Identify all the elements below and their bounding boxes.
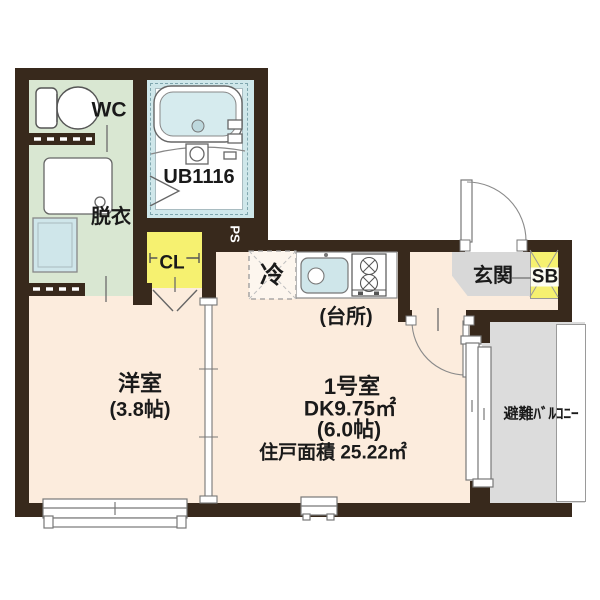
main-room-dk-size: (6.0帖)	[317, 420, 381, 441]
kitchen-label: (台所)	[319, 307, 372, 327]
dressing-label: 脱衣	[91, 207, 131, 227]
unit-bath-inner-white	[155, 88, 243, 210]
wall-wc-ub-divider	[133, 68, 147, 290]
wall-mid-a	[230, 240, 465, 252]
pipe-space-label: PS	[229, 225, 242, 242]
wall-entrance-bottom-left	[398, 310, 412, 322]
front-door-icon	[460, 180, 527, 251]
wc-label: WC	[92, 100, 127, 121]
wall-bottom	[15, 503, 572, 517]
wall-left	[15, 68, 29, 517]
main-room-dk-area: DK9.75㎡	[304, 399, 396, 420]
wall-dressing-bottom	[29, 283, 85, 296]
western-room-label: 洋室	[118, 373, 162, 395]
balcony-label: 避難ﾊﾞﾙｺﾆｰ	[503, 407, 578, 422]
floor-plan: WC 脱衣 UB1116 CL PS 冷 (台所) 玄関 SB 洋室 (3.8帖…	[0, 0, 600, 600]
entrance-label: 玄関	[473, 266, 513, 286]
wall-closet-left-block	[133, 283, 152, 305]
wall-entrance-bottom-right	[466, 310, 572, 322]
wall-wc-bottom	[29, 133, 95, 145]
wall-balcony-window-top	[470, 322, 490, 343]
shoe-box-label: SB	[531, 268, 559, 287]
western-room-size: (3.8帖)	[109, 400, 170, 420]
unit-bath-label: UB1116	[163, 167, 234, 187]
wall-closet-right	[202, 218, 216, 305]
main-room-label: 1号室	[324, 376, 380, 398]
wall-balcony-window-bottom	[470, 481, 490, 503]
main-room-unit-area: 住戸面積 25.22㎡	[259, 444, 407, 463]
closet-label: CL	[157, 254, 186, 273]
wall-ub-right	[254, 68, 268, 242]
refrigerator-label: 冷	[260, 264, 284, 288]
wall-kitchen-entrance-divider	[398, 250, 410, 318]
